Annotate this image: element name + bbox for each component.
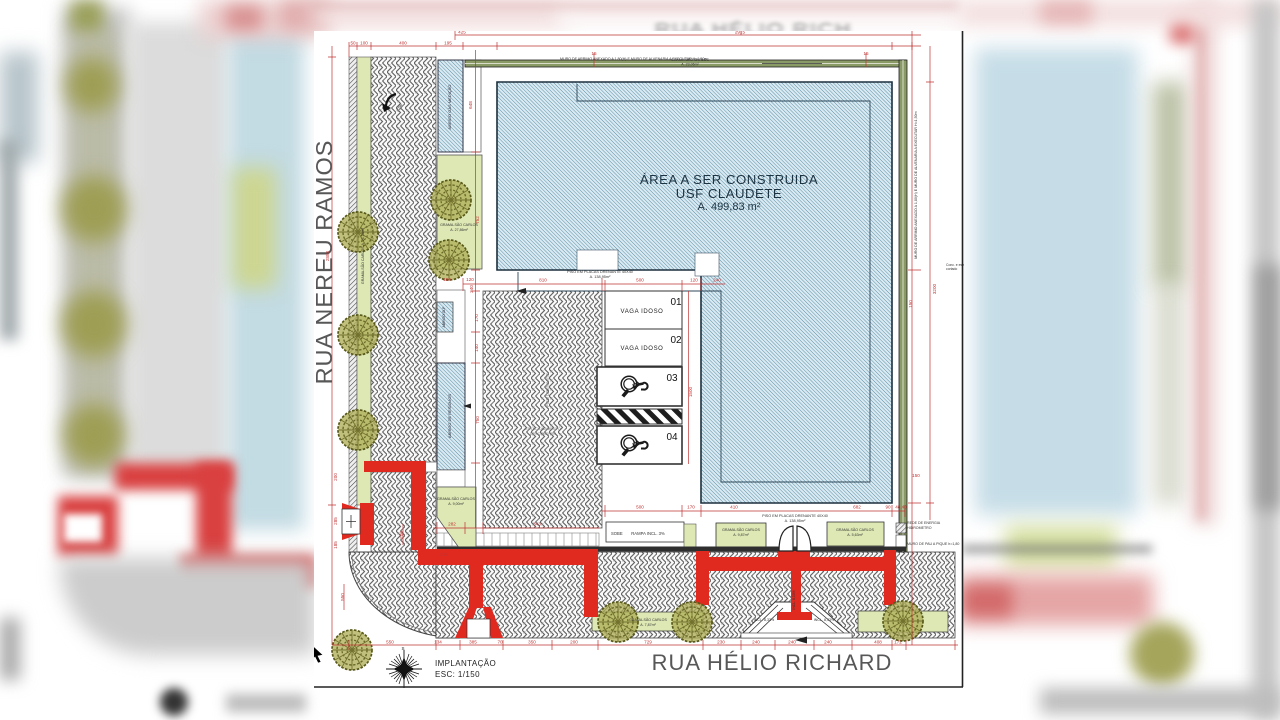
svg-text:240: 240 <box>788 640 796 645</box>
svg-text:385: 385 <box>469 640 477 645</box>
svg-text:500: 500 <box>636 505 644 510</box>
svg-text:648: 648 <box>468 101 473 109</box>
svg-text:3200: 3200 <box>932 283 937 294</box>
svg-text:240: 240 <box>752 640 760 645</box>
svg-text:752: 752 <box>475 216 480 224</box>
svg-text:50: 50 <box>350 41 356 46</box>
svg-text:MURO DE PAU A PIQUE h=1,80: MURO DE PAU A PIQUE h=1,80 <box>907 542 959 546</box>
svg-text:A. 9,87m²: A. 9,87m² <box>733 533 749 537</box>
svg-text:03: 03 <box>666 373 678 384</box>
svg-text:180: 180 <box>443 277 451 282</box>
svg-text:150: 150 <box>908 300 913 308</box>
svg-text:200: 200 <box>570 640 578 645</box>
svg-text:15: 15 <box>591 51 597 56</box>
svg-text:GRAMA-SÃO CARLOS: GRAMA-SÃO CARLOS <box>440 222 478 227</box>
svg-text:A. 7,87m²: A. 7,87m² <box>640 623 656 627</box>
svg-text:IMPLANTAÇÃO: IMPLANTAÇÃO <box>435 659 496 668</box>
svg-text:70: 70 <box>497 640 503 645</box>
svg-text:120: 120 <box>466 277 474 282</box>
svg-text:410: 410 <box>730 505 738 510</box>
svg-text:ABRIGO DE RESÍDUOS: ABRIGO DE RESÍDUOS <box>447 394 452 439</box>
svg-text:RUA HÉLIO RICHARD: RUA HÉLIO RICHARD <box>652 650 893 675</box>
svg-text:GRAMA-SÃO CARLOS A. 21,36m²: GRAMA-SÃO CARLOS A. 21,36m² <box>360 227 365 284</box>
svg-text:195: 195 <box>444 41 452 46</box>
svg-text:PISO DRENANTE: PISO DRENANTE <box>545 373 550 407</box>
svg-text:140: 140 <box>474 344 479 352</box>
svg-text:A. 5,63m²: A. 5,63m² <box>847 533 863 537</box>
svg-text:240: 240 <box>469 285 474 293</box>
svg-text:282: 282 <box>448 522 456 527</box>
svg-text:500: 500 <box>636 278 644 283</box>
svg-text:350: 350 <box>528 640 536 645</box>
svg-text:S: S <box>401 646 404 651</box>
svg-text:INCL. 8,33%: INCL. 8,33% <box>754 618 775 622</box>
svg-text:230: 230 <box>717 640 725 645</box>
svg-text:GRAMA-SÃO CARLOS: GRAMA-SÃO CARLOS <box>671 57 709 62</box>
svg-text:170: 170 <box>474 314 479 322</box>
svg-text:ESTACIONAMENTO: ESTACIONAMENTO <box>525 427 560 431</box>
svg-text:VAGA IDOSO: VAGA IDOSO <box>621 309 664 315</box>
svg-text:DESCOBERTO: DESCOBERTO <box>530 432 556 436</box>
svg-text:120: 120 <box>690 278 698 283</box>
svg-text:cortado: cortado <box>946 267 957 271</box>
svg-text:SOBE: SOBE <box>611 531 623 536</box>
svg-text:ABRIGO GLP: ABRIGO GLP <box>442 306 446 328</box>
svg-text:A. 23,06m²: A. 23,06m² <box>681 63 699 67</box>
svg-text:A. 9,00m²: A. 9,00m² <box>448 502 464 506</box>
svg-text:GRAMA-SÃO CARLOS: GRAMA-SÃO CARLOS <box>722 527 760 532</box>
svg-text:01: 01 <box>670 297 682 308</box>
svg-text:810: 810 <box>539 278 547 283</box>
svg-text:04: 04 <box>666 432 678 443</box>
svg-text:90: 90 <box>885 505 891 510</box>
svg-text:REDE DE ENERGIA: REDE DE ENERGIA <box>907 521 941 525</box>
svg-text:ESC: 1/150: ESC: 1/150 <box>435 670 480 679</box>
svg-text:2915: 2915 <box>735 31 746 35</box>
svg-text:RAMPA INCL. 3%: RAMPA INCL. 3% <box>631 531 665 536</box>
svg-text:285: 285 <box>333 517 338 525</box>
svg-text:15: 15 <box>863 51 869 56</box>
svg-text:48,40: 48,40 <box>895 505 907 510</box>
svg-text:200: 200 <box>440 552 448 557</box>
svg-text:HIDROMETRO: HIDROMETRO <box>907 526 932 530</box>
svg-text:A. 138,95m²: A. 138,95m² <box>590 275 611 279</box>
svg-text:200: 200 <box>399 531 404 539</box>
svg-text:172: 172 <box>894 640 902 645</box>
svg-text:GRAMA-SÃO CARLOS: GRAMA-SÃO CARLOS <box>437 496 475 501</box>
svg-text:PISO EM PLACAS DRENANTE 40X40: PISO EM PLACAS DRENANTE 40X40 <box>762 514 828 518</box>
svg-text:185: 185 <box>333 541 338 549</box>
svg-text:170: 170 <box>687 505 695 510</box>
svg-text:INCL. 8,33%: INCL. 8,33% <box>814 618 835 622</box>
svg-text:400: 400 <box>399 41 407 46</box>
svg-text:GRAMA-SÃO CARLOS: GRAMA-SÃO CARLOS <box>836 527 874 532</box>
svg-text:134: 134 <box>434 640 442 645</box>
svg-text:408: 408 <box>874 640 882 645</box>
svg-text:1500: 1500 <box>688 386 693 397</box>
svg-text:A. 499,83 m²: A. 499,83 m² <box>698 201 761 213</box>
svg-text:USF CLAUDETE: USF CLAUDETE <box>676 186 782 201</box>
svg-text:02: 02 <box>670 335 682 346</box>
svg-text:425: 425 <box>458 31 466 35</box>
svg-text:550: 550 <box>340 593 345 601</box>
svg-text:A. 27,86m²: A. 27,86m² <box>450 228 468 232</box>
svg-text:682: 682 <box>853 505 861 510</box>
svg-text:GRAMA-SÃO CARLOS: GRAMA-SÃO CARLOS <box>629 617 667 622</box>
svg-text:PISO EM PLACAS DRENANTE 40X40: PISO EM PLACAS DRENANTE 40X40 <box>567 270 633 274</box>
svg-text:729: 729 <box>644 640 652 645</box>
svg-text:A. 138,95m²: A. 138,95m² <box>785 519 806 523</box>
svg-text:ABRIGO GÁS MEDIÇÃO: ABRIGO GÁS MEDIÇÃO <box>447 85 452 130</box>
svg-text:150: 150 <box>912 473 920 478</box>
svg-text:550: 550 <box>386 640 394 645</box>
svg-text:MURO DE ARRIMO ANEXADO A 1,80(: MURO DE ARRIMO ANEXADO A 1,80(H) E MURO … <box>914 111 918 258</box>
svg-text:843: 843 <box>533 522 541 527</box>
svg-text:100: 100 <box>360 41 368 46</box>
svg-text:750: 750 <box>475 416 480 424</box>
svg-text:ÁREA A SER CONSTRUIDA: ÁREA A SER CONSTRUIDA <box>640 172 818 187</box>
svg-text:VAGA IDOSO: VAGA IDOSO <box>621 346 664 352</box>
svg-text:200: 200 <box>333 473 338 481</box>
svg-text:240: 240 <box>713 278 721 283</box>
svg-text:240: 240 <box>824 640 832 645</box>
svg-text:INCL. 8,33%: INCL. 8,33% <box>792 590 796 609</box>
svg-text:2880: 2880 <box>325 250 330 261</box>
